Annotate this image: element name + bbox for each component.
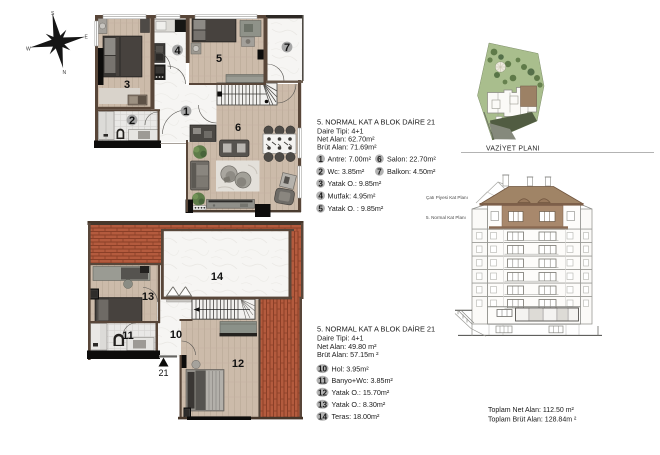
svg-text:5. NORMAL KAT A BLOK DAİRE 21: 5. NORMAL KAT A BLOK DAİRE 21 bbox=[317, 118, 435, 127]
svg-text:Teras: 18.00m²: Teras: 18.00m² bbox=[332, 412, 381, 421]
svg-text:Hol: 3.95m²: Hol: 3.95m² bbox=[332, 364, 370, 373]
svg-text:7: 7 bbox=[284, 42, 290, 54]
svg-text:Toplam Net Alan: 112.50 m²: Toplam Net Alan: 112.50 m² bbox=[488, 407, 575, 414]
svg-text:4: 4 bbox=[174, 45, 181, 57]
svg-text:1: 1 bbox=[183, 106, 189, 118]
svg-text:12: 12 bbox=[318, 388, 328, 397]
svg-text:5: 5 bbox=[318, 204, 323, 213]
svg-text:Banyo+Wc: 3.85m²: Banyo+Wc: 3.85m² bbox=[332, 376, 394, 385]
svg-text:3: 3 bbox=[124, 79, 130, 91]
svg-text:10: 10 bbox=[318, 365, 328, 374]
svg-text:14: 14 bbox=[318, 412, 328, 421]
svg-text:11: 11 bbox=[318, 376, 327, 385]
svg-text:1: 1 bbox=[318, 155, 323, 164]
svg-text:Yatak O. : 9.85m²: Yatak O. : 9.85m² bbox=[328, 204, 384, 213]
svg-text:Çatı Piyesi Kat Planı: Çatı Piyesi Kat Planı bbox=[426, 195, 468, 200]
svg-text:7: 7 bbox=[377, 167, 382, 176]
svg-text:6: 6 bbox=[377, 155, 382, 164]
svg-text:Yatak O.: 8.30m²: Yatak O.: 8.30m² bbox=[332, 400, 386, 409]
svg-text:5. NORMAL KAT A BLOK DAİRE 21: 5. NORMAL KAT A BLOK DAİRE 21 bbox=[317, 325, 435, 334]
svg-text:3: 3 bbox=[318, 179, 323, 188]
svg-text:Brüt Alan: 71.69m²: Brüt Alan: 71.69m² bbox=[317, 143, 377, 152]
svg-text:Antre: 7.00m²: Antre: 7.00m² bbox=[328, 155, 372, 164]
svg-text:6: 6 bbox=[235, 122, 241, 134]
svg-text:Balkon: 4.50m²: Balkon: 4.50m² bbox=[387, 167, 436, 176]
svg-text:11: 11 bbox=[122, 330, 134, 342]
svg-text:10: 10 bbox=[170, 329, 182, 341]
svg-text:Brüt Alan: 57.15m ²: Brüt Alan: 57.15m ² bbox=[317, 350, 379, 359]
svg-text:2: 2 bbox=[318, 167, 323, 176]
svg-text:5: 5 bbox=[216, 53, 222, 65]
svg-text:13: 13 bbox=[318, 400, 328, 409]
svg-text:W: W bbox=[26, 47, 31, 53]
svg-text:2: 2 bbox=[129, 115, 135, 127]
svg-text:Yatak O.: 9.85m²: Yatak O.: 9.85m² bbox=[328, 179, 382, 188]
svg-text:4: 4 bbox=[318, 192, 323, 201]
svg-text:Wc: 3.85m²: Wc: 3.85m² bbox=[328, 167, 365, 176]
svg-text:21: 21 bbox=[158, 368, 168, 378]
svg-text:5. Normal Kat Planı: 5. Normal Kat Planı bbox=[426, 215, 466, 220]
svg-text:Yatak O.: 15.70m²: Yatak O.: 15.70m² bbox=[332, 388, 390, 397]
svg-text:13: 13 bbox=[142, 291, 154, 303]
svg-text:14: 14 bbox=[211, 271, 224, 283]
svg-text:VAZİYET PLANI: VAZİYET PLANI bbox=[486, 144, 540, 153]
svg-text:N: N bbox=[63, 70, 67, 76]
svg-text:Salon: 22.70m²: Salon: 22.70m² bbox=[387, 155, 436, 164]
svg-text:Toplam Brüt Alan: 128.84m ²: Toplam Brüt Alan: 128.84m ² bbox=[488, 417, 577, 424]
svg-text:Mutfak: 4.95m²: Mutfak: 4.95m² bbox=[328, 191, 377, 200]
svg-text:12: 12 bbox=[232, 358, 244, 370]
